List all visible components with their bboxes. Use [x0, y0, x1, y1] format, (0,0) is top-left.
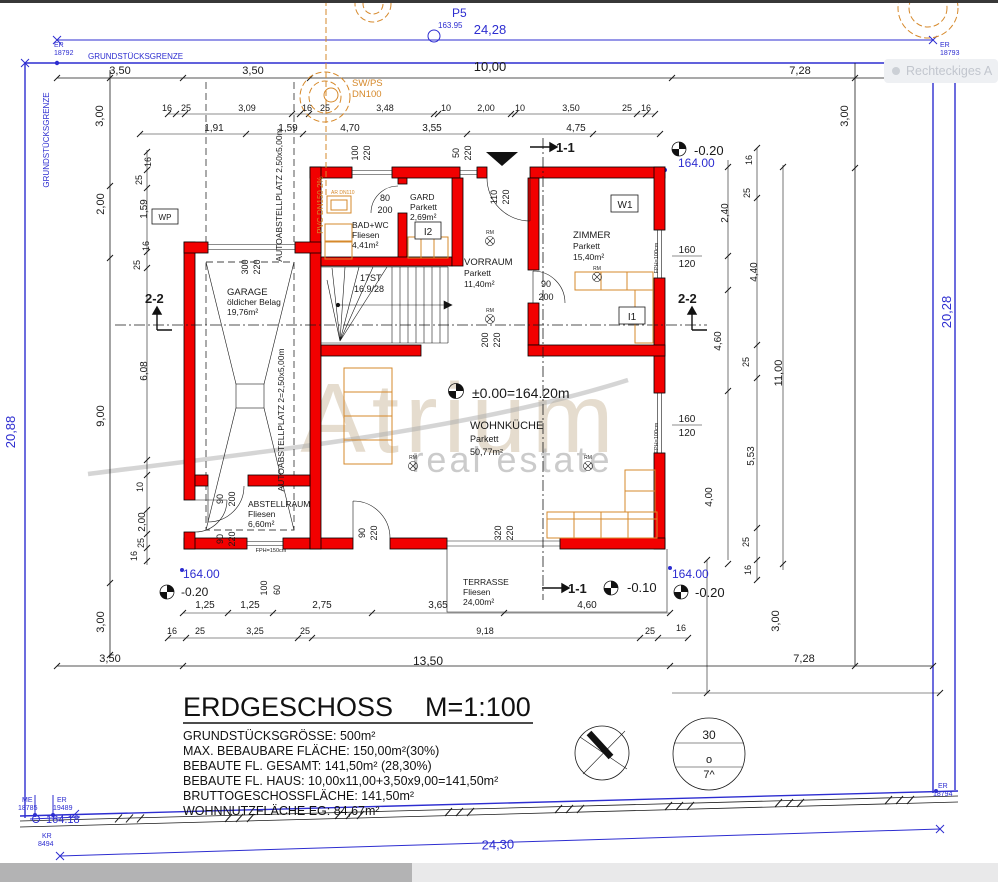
plan-label: RM [584, 455, 592, 461]
plan-label: AUTOABSTELLPLATZ 2=2,50x5,00m [276, 348, 286, 491]
plan-label: 4,70 [340, 123, 360, 134]
plan-label: FPH=100cm [654, 242, 660, 273]
plan-label: 1,59 [139, 199, 150, 219]
plan-label: 30 [702, 728, 716, 742]
plan-label: Fliesen [463, 587, 491, 597]
plan-label: 100 [259, 580, 269, 595]
section-marker-2-2: 2-2 [145, 291, 164, 306]
plan-label: 3,55 [422, 123, 442, 134]
plan-label: 11,40m² [464, 279, 495, 289]
room-label-wohnkueche: WOHNKÜCHE [470, 420, 543, 432]
plan-label: 3,50 [99, 653, 120, 665]
plan-label: Parkett [464, 268, 492, 278]
plan-label: 3,50 [242, 65, 263, 77]
plan-label: KR [42, 833, 52, 840]
plan-label: 25 [181, 103, 191, 113]
plan-label: 164.00 [183, 567, 220, 581]
plan-label: 2,69m² [410, 212, 437, 222]
plan-label: o [706, 754, 712, 766]
plan-label: 3,50 [562, 103, 580, 113]
plan-label: 220 [492, 332, 502, 347]
plan-label: 3,25 [246, 626, 264, 636]
plan-label: 2,00 [477, 103, 495, 113]
plan-label: FPH=100cm [654, 422, 660, 453]
plan-label: -0.20 [695, 585, 725, 600]
plan-label: 4,60 [713, 331, 724, 351]
plan-label: DN100 [352, 89, 382, 100]
plan-label: 16 [641, 103, 651, 113]
plan-label: 24,30 [481, 837, 514, 853]
level-marker-icon [160, 585, 174, 599]
smoke-detector-icon [593, 273, 602, 282]
section-marker-1-1: 1-1 [568, 581, 587, 596]
plan-label: 25 [320, 103, 330, 113]
smoke-detector-icon [486, 237, 495, 246]
room-label-gard: GARD [410, 192, 435, 202]
plan-label: 16 [162, 103, 172, 113]
plan-label: 16 [129, 551, 139, 561]
plan-label: 3,00 [839, 105, 851, 126]
room-label-vorraum: VORRAUM [464, 257, 513, 268]
plan-label: 25 [622, 103, 632, 113]
level-marker-icon [604, 581, 618, 595]
plan-label: 20,88 [3, 416, 18, 449]
plan-label: 220 [362, 145, 372, 160]
tree-symbols [575, 718, 745, 790]
plan-label: 10,00 [474, 59, 507, 74]
plan-label: 25 [195, 626, 205, 636]
info-line: GRUNDSTÜCKSGRÖSSE: 500m² [183, 729, 375, 743]
plan-label: 25 [134, 175, 144, 185]
plan-label: 16 [143, 157, 153, 167]
plan-label: 18785 [18, 805, 38, 812]
plan-label: Fliesen [352, 230, 380, 240]
plan-label: 16 [141, 241, 151, 251]
plan-label: 3,00 [770, 610, 782, 631]
plan-label: 3,65 [428, 600, 448, 611]
floorplan-canvas: Atrium real estate [0, 0, 998, 882]
plan-label: 220 [252, 259, 262, 274]
plan-label: WP [159, 213, 172, 222]
plan-scale: M=1:100 [425, 692, 531, 722]
plan-label: 18792 [54, 50, 74, 57]
room-label-zimmer: ZIMMER [573, 230, 611, 241]
plan-label: ME [22, 797, 33, 804]
floorplan-drawing: Atrium real estate [0, 0, 998, 862]
plan-label: GRUNDSTÜCKSGRENZE [88, 52, 183, 61]
plan-label: 9,00 [95, 405, 107, 426]
plan-label: 4,75 [566, 123, 586, 134]
plan-label: -0.20 [181, 585, 209, 599]
plan-label: RM [486, 308, 494, 314]
plan-label: ER [940, 42, 950, 49]
plan-label: öldicher Belag [227, 297, 281, 307]
smoke-detector-icon [486, 315, 495, 324]
plan-label: 164.00 [672, 567, 709, 581]
plan-label: 25 [300, 626, 310, 636]
plan-label: 90 [541, 279, 551, 289]
plan-label: 17ST [360, 273, 382, 283]
plan-label: 9,18 [476, 626, 494, 636]
plan-label: PVC DN150 2% [316, 176, 325, 233]
plan-label: 2,40 [720, 203, 731, 223]
plan-label: 16 [743, 565, 753, 575]
plan-label: 6,60m² [248, 519, 275, 529]
plan-label: GRUNDSTÜCKSGRENZE [42, 92, 51, 187]
plan-label: 220 [463, 145, 473, 160]
plan-labels: P5163.9524,28ER18792GRUNDSTÜCKSGRENZEGRU… [3, 6, 960, 852]
plan-label: 110 [489, 190, 499, 204]
plan-label: 90 [357, 528, 367, 538]
plan-label: 120 [679, 428, 696, 439]
plan-label: 1,25 [195, 600, 215, 611]
plan-label: 18794 [933, 791, 953, 798]
plan-label: 1,25 [240, 600, 260, 611]
plan-label: 220 [227, 531, 237, 546]
plan-label: 3,50 [109, 65, 130, 77]
plan-label: 7,28 [789, 65, 810, 77]
level-marker-icon [672, 142, 686, 156]
plan-label: 100 [350, 145, 360, 160]
plan-label: 160 [679, 414, 696, 425]
entrance-arrow-icon [486, 152, 518, 166]
info-line: BRUTTOGESCHOSSFLÄCHE: 141,50m² [183, 789, 414, 803]
plan-label: 220 [501, 189, 511, 204]
plan-label: 25 [741, 537, 751, 547]
plan-label: 3,00 [94, 105, 106, 126]
plan-label: 19489 [53, 805, 73, 812]
plan-label: 6,08 [139, 361, 150, 381]
section-marker-1-1: 1-1 [556, 140, 575, 155]
plan-label: 4,00 [704, 487, 715, 507]
plan-label: 80 [380, 193, 390, 203]
plan-label: 7,28 [793, 653, 814, 665]
plan-label: AR DN110 [331, 190, 355, 196]
plan-label: 160 [679, 245, 696, 256]
plan-label: Parkett [573, 241, 601, 251]
plan-title: ERDGESCHOSS [183, 692, 393, 722]
plan-label: 24,28 [474, 22, 507, 37]
plan-label: 25 [136, 538, 146, 548]
plan-label: 7^ [703, 769, 715, 781]
staircase [321, 267, 452, 343]
plan-label: 3,00 [95, 611, 107, 632]
plan-label: 3,09 [238, 103, 256, 113]
window-bottom-chrome [0, 863, 998, 882]
plan-label: SW/PS [352, 78, 383, 89]
plan-label: 16 [744, 155, 754, 165]
plan-label: 11,00 [773, 360, 785, 387]
plan-label: 90 [215, 534, 225, 544]
window-top-border [0, 0, 998, 3]
plan-label: 16 [302, 103, 312, 113]
plan-label: 10 [515, 103, 525, 113]
info-line: BEBAUTE FL. GESAMT: 141,50m² (28,30%) [183, 759, 432, 773]
plan-label: AUTOABSTELLPLATZ 2,50x5,00m [274, 128, 284, 261]
level-marker-icon [674, 585, 688, 599]
plan-label: 90 [215, 494, 225, 504]
plan-label: 2,75 [312, 600, 332, 611]
plan-label: 163.95 [438, 21, 463, 30]
plan-label: 300 [240, 259, 250, 274]
plan-label: RM [409, 455, 417, 461]
plan-label: ±0.00=164.20m [472, 385, 570, 401]
plan-label: W1 [618, 200, 633, 211]
plan-label: 10 [441, 103, 451, 113]
plan-label: 4,41m² [352, 240, 379, 250]
plan-label: 164.00 [678, 156, 715, 170]
plan-label: 50,77m² [470, 447, 503, 457]
plan-label: I2 [424, 227, 433, 238]
plan-label: 5,53 [746, 446, 757, 466]
plan-label: 200 [377, 205, 392, 215]
plan-label: 16.9/28 [354, 284, 384, 294]
plan-label: 200 [538, 292, 553, 302]
room-label-terrasse: TERRASSE [463, 577, 509, 587]
plan-label: 16 [676, 623, 686, 633]
plan-label: 4,40 [749, 262, 760, 282]
section-marker-2-2: 2-2 [678, 291, 697, 306]
plan-label: -0.20 [694, 143, 724, 158]
plan-label: -0.10 [627, 580, 657, 595]
tool-dot-icon [892, 67, 900, 75]
plan-label: 10 [135, 482, 145, 492]
plan-label: 25 [742, 188, 752, 198]
plan-label: 25 [132, 260, 142, 270]
plan-label: 200 [227, 491, 237, 506]
room-label-badwc: BAD+WC [352, 220, 389, 230]
info-line: WOHNNUTZFLÄCHE EG: 84,67m² [183, 804, 380, 818]
plan-label: 15,40m² [573, 252, 604, 262]
plan-label: Fliesen [248, 509, 276, 519]
plan-label: 60 [272, 585, 282, 595]
plan-label: 3,48 [376, 103, 394, 113]
plan-label: 18793 [940, 50, 960, 57]
info-line: BEBAUTE FL. HAUS: 10,00x11,00+3,50x9,00=… [183, 774, 498, 788]
plan-label: Parkett [410, 202, 438, 212]
plan-label: RM [593, 266, 601, 272]
taskbar-segment [0, 863, 412, 882]
plan-label: 50 [451, 148, 461, 158]
level-marker-icon [449, 384, 464, 399]
room-label-abstellraum: ABSTELLRAUM [248, 499, 310, 509]
plan-label: ER [54, 42, 64, 49]
plan-label: Parkett [470, 434, 499, 444]
tool-tooltip-label: Rechteckiges A [906, 64, 992, 78]
plan-label: 220 [369, 525, 379, 540]
sewer-shaft-icon [300, 72, 350, 122]
watermark-sub: real estate [411, 439, 612, 480]
tree-north-icon [575, 726, 629, 780]
title-block: ERDGESCHOSS M=1:100 GRUNDSTÜCKSGRÖSSE: 5… [183, 692, 533, 818]
tool-tooltip[interactable]: Rechteckiges A [884, 59, 998, 83]
plan-label: 4,60 [577, 600, 597, 611]
plan-label: 25 [645, 626, 655, 636]
plan-label: 320 [493, 525, 503, 540]
info-line: MAX. BEBAUBARE FLÄCHE: 150,00m²(30%) [183, 744, 439, 758]
watermark: Atrium real estate [88, 363, 628, 480]
plan-label: 16 [167, 626, 177, 636]
plan-label: 164.18 [46, 814, 80, 826]
plan-label: 19,76m² [227, 307, 258, 317]
plan-label: 24,00m² [463, 597, 494, 607]
plan-label: 2,00 [95, 193, 107, 214]
plan-label: ER [57, 797, 67, 804]
plan-label: P5 [452, 6, 467, 20]
plan-label: 120 [679, 259, 696, 270]
plan-label: ER [938, 783, 948, 790]
plan-label: 220 [505, 525, 515, 540]
plan-label: I1 [628, 312, 637, 323]
plan-label: 1,91 [204, 123, 224, 134]
plan-label: 8494 [38, 841, 54, 848]
plan-label: 25 [741, 357, 751, 367]
plan-label: 2,00 [137, 512, 148, 532]
plan-label: 20,28 [939, 296, 954, 329]
plan-label: 200 [480, 332, 490, 347]
plan-label: 13,50 [413, 654, 443, 668]
plan-label: RM [486, 230, 494, 236]
plan-label: FPH=150cm [256, 548, 287, 554]
